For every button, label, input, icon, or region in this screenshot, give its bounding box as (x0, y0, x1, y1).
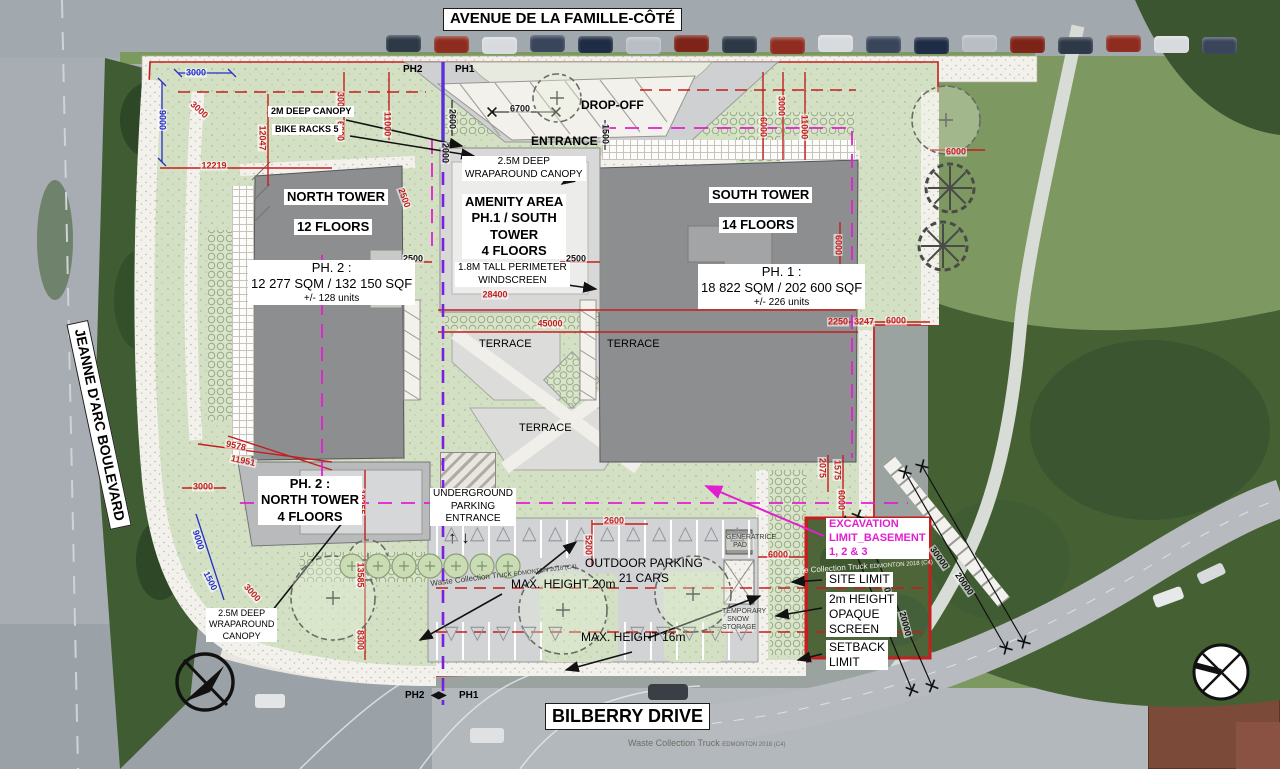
ph1-stats-label: PH. 1 : 18 822 SQM / 202 600 SQF +/- 226… (698, 264, 865, 309)
south-tower-label: SOUTH TOWER (709, 187, 812, 203)
phase-arrows-icon: ◀▶ (428, 690, 449, 703)
south-tower-floors-label: 14 FLOORS (719, 217, 797, 233)
bike-racks-label: BIKE RACKS 5 (272, 124, 342, 135)
terrace-label: TERRACE (516, 422, 575, 436)
amenity-area-label: AMENITY AREA PH.1 / SOUTH TOWER 4 FLOORS (462, 194, 566, 259)
ph2-stats-label: PH. 2 : 12 277 SQM / 132 150 SQF +/- 128… (248, 260, 415, 305)
cloud-tree-icon (533, 74, 581, 122)
entrance-label: ENTRANCE (528, 134, 601, 149)
canopy-2m-label: 2M DEEP CANOPY (268, 106, 354, 117)
phase-marker-ph1-bottom: PH1 (456, 690, 481, 703)
temporary-snow-storage-label: TEMPORARY SNOW STORAGE (722, 608, 754, 632)
setback-limit-label: SETBACK LIMIT (826, 640, 888, 670)
excavation-limit-label: EXCAVATION LIMIT_BASEMENT 1, 2 & 3 (826, 518, 929, 559)
wraparound-canopy-label-bottom: 2.5M DEEP WRAPAROUND CANOPY (206, 608, 277, 642)
north-tower-label: NORTH TOWER (284, 189, 388, 205)
waste-truck-label: Waste Collection Truck EDMONTON 2018 (C4… (628, 738, 785, 749)
terrace-label: TERRACE (604, 338, 663, 352)
tree-symbols (0, 0, 1280, 769)
gear-tree-icon (926, 164, 974, 212)
windscreen-label: 1.8M TALL PERIMETER WINDSCREEN (455, 262, 570, 287)
underground-parking-label: UNDERGROUND PARKING ENTRANCE (430, 488, 516, 526)
round-tree-icon (366, 554, 390, 578)
round-tree-icon (418, 554, 442, 578)
generatrice-pad-label: GENERATRICE PAD (726, 534, 754, 550)
round-tree-icon (340, 554, 364, 578)
cloud-tree-icon (912, 86, 980, 154)
max-height-20m-label: MAX. HEIGHT 20m (508, 577, 618, 592)
site-plan-screenshot: AVENUE DE LA FAMILLE-CÔTÉ JEANNE D'ARC B… (0, 0, 1280, 769)
phase-marker-ph2-top: PH2 (400, 64, 425, 77)
max-height-16m-label: MAX. HEIGHT 16m (578, 630, 688, 645)
ramp-up-down-arrows-icon: ↑ ↓ (448, 528, 470, 548)
ph2-north-tower-label: PH. 2 : NORTH TOWER 4 FLOORS (258, 476, 362, 525)
drop-off-label: DROP-OFF (578, 98, 647, 113)
terrace-label: TERRACE (476, 338, 535, 352)
road-label-bilberry: BILBERRY DRIVE (545, 703, 710, 730)
phase-marker-ph1-top: PH1 (452, 64, 477, 77)
phase-marker-ph2-bottom: PH2 (402, 690, 427, 703)
north-tower-floors-label: 12 FLOORS (294, 219, 372, 235)
opaque-screen-label: 2m HEIGHT OPAQUE SCREEN (826, 592, 897, 637)
site-limit-label: SITE LIMIT (826, 572, 893, 587)
gear-tree-icon (919, 222, 967, 270)
road-label-avenue: AVENUE DE LA FAMILLE-CÔTÉ (443, 8, 682, 31)
round-tree-icon (392, 554, 416, 578)
wraparound-canopy-label-top: 2.5M DEEP WRAPAROUND CANOPY (462, 156, 586, 181)
